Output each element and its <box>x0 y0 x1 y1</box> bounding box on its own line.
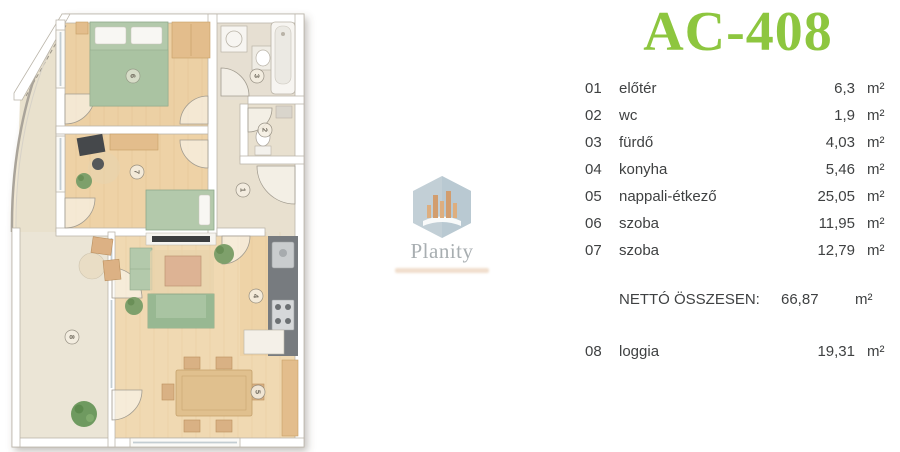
room-name: szoba <box>619 242 781 259</box>
room-area: 4,03 <box>781 134 855 151</box>
washing-machine <box>221 26 247 52</box>
wall-loggia-left <box>12 228 20 447</box>
room-area: 5,46 <box>781 161 855 178</box>
room-area: 1,9 <box>781 107 855 124</box>
tv <box>152 236 210 242</box>
room-name: nappali-étkező <box>619 188 781 205</box>
room-name: fürdő <box>619 134 781 151</box>
wall-hall-bottom <box>217 228 265 236</box>
legend-row: 02wc1,9m² <box>585 102 891 129</box>
watermark-brand-name: Planity <box>390 239 494 264</box>
room-name: előtér <box>619 80 781 97</box>
area-unit: m² <box>855 107 891 124</box>
tall-cabinet <box>282 360 298 436</box>
legend-row: 07szoba12,79m² <box>585 237 891 264</box>
sofa-arm <box>206 294 214 328</box>
loggia-table <box>79 253 105 279</box>
chair <box>184 420 200 432</box>
chair <box>162 384 174 400</box>
area-unit: m² <box>855 161 891 178</box>
room-area: 25,05 <box>781 188 855 205</box>
room-label-szoba-b: 7 <box>133 170 142 174</box>
room-area: 11,95 <box>781 215 855 232</box>
plant <box>214 244 234 264</box>
legend-extra-rows: 08loggia19,31m² <box>585 338 891 365</box>
kitchen-cabinet <box>244 330 284 354</box>
page: 1 2 3 4 5 6 7 8 <box>0 0 900 452</box>
wall-bathroom-bottom <box>248 96 304 104</box>
room-number: 06 <box>585 215 619 232</box>
room-area: 6,3 <box>781 80 855 97</box>
room-number: 07 <box>585 242 619 259</box>
room-name: loggia <box>619 343 781 360</box>
nightstand <box>76 22 88 34</box>
plant <box>125 297 143 315</box>
room-label-nappali: 5 <box>254 390 263 394</box>
chair <box>184 357 200 369</box>
wc-sink <box>276 106 292 118</box>
area-unit: m² <box>855 343 891 360</box>
area-unit: m² <box>855 134 891 151</box>
area-unit: m² <box>855 188 891 205</box>
room-name: konyha <box>619 161 781 178</box>
sofa-arm <box>148 294 156 328</box>
legend-row: 01előtér6,3m² <box>585 75 891 102</box>
wall-wc-left <box>240 104 248 160</box>
total-label: NETTÓ ÖSSZESEN: <box>619 291 781 308</box>
loggia-chair <box>91 237 113 256</box>
room-number: 03 <box>585 134 619 151</box>
room-number: 04 <box>585 161 619 178</box>
room-label-szoba-a: 6 <box>129 74 138 78</box>
legend-row: 03fürdő4,03m² <box>585 129 891 156</box>
loggia-chair <box>103 259 121 281</box>
pillow <box>199 195 210 225</box>
area-unit: m² <box>855 242 891 259</box>
dining-table <box>176 370 252 416</box>
plant <box>76 173 92 189</box>
desk-chair <box>92 158 104 170</box>
stove <box>272 300 294 330</box>
room-label-furdo: 3 <box>253 74 262 78</box>
rug <box>88 152 120 184</box>
area-unit: m² <box>855 215 891 232</box>
chair <box>216 420 232 432</box>
floorplan: 1 2 3 4 5 6 7 8 <box>0 0 320 452</box>
legend-total-row: NETTÓ ÖSSZESEN: 66,87 m² <box>585 286 891 313</box>
chair <box>216 357 232 369</box>
legend-row: 05nappali-étkező25,05m² <box>585 183 891 210</box>
dresser <box>110 134 158 150</box>
pillow <box>131 27 162 44</box>
total-unit: m² <box>855 291 891 308</box>
legend-row: 08loggia19,31m² <box>585 338 891 365</box>
plant <box>71 401 97 427</box>
room-number: 08 <box>585 343 619 360</box>
room-number: 01 <box>585 80 619 97</box>
wall-wc-bottom <box>240 156 304 164</box>
wall-between-bedrooms <box>56 126 214 134</box>
legend-panel: AC-408 01előtér6,3m²02wc1,9m²03fürdő4,03… <box>585 0 891 365</box>
legend-row: 04konyha5,46m² <box>585 156 891 183</box>
watermark-tagline <box>395 268 489 273</box>
room-area: 19,31 <box>781 343 855 360</box>
area-unit: m² <box>855 80 891 97</box>
page-title: AC-408 <box>585 0 891 64</box>
legend-row: 06szoba11,95m² <box>585 210 891 237</box>
room-label-eloter: 1 <box>239 188 248 192</box>
legend-rows: 01előtér6,3m²02wc1,9m²03fürdő4,03m²04kon… <box>585 75 891 264</box>
room-name: wc <box>619 107 781 124</box>
watermark: Planity <box>390 176 494 273</box>
coffee-table <box>165 256 201 286</box>
room-label-wc: 2 <box>261 128 270 132</box>
room-number: 05 <box>585 188 619 205</box>
room-number: 02 <box>585 107 619 124</box>
room-label-loggia: 8 <box>68 335 77 339</box>
total-area: 66,87 <box>781 291 855 308</box>
sofa-back <box>148 318 214 328</box>
room-name: szoba <box>619 215 781 232</box>
toilet-tank <box>255 146 271 155</box>
pillow <box>95 27 126 44</box>
watermark-logo-icon <box>413 176 471 238</box>
room-area: 12,79 <box>781 242 855 259</box>
